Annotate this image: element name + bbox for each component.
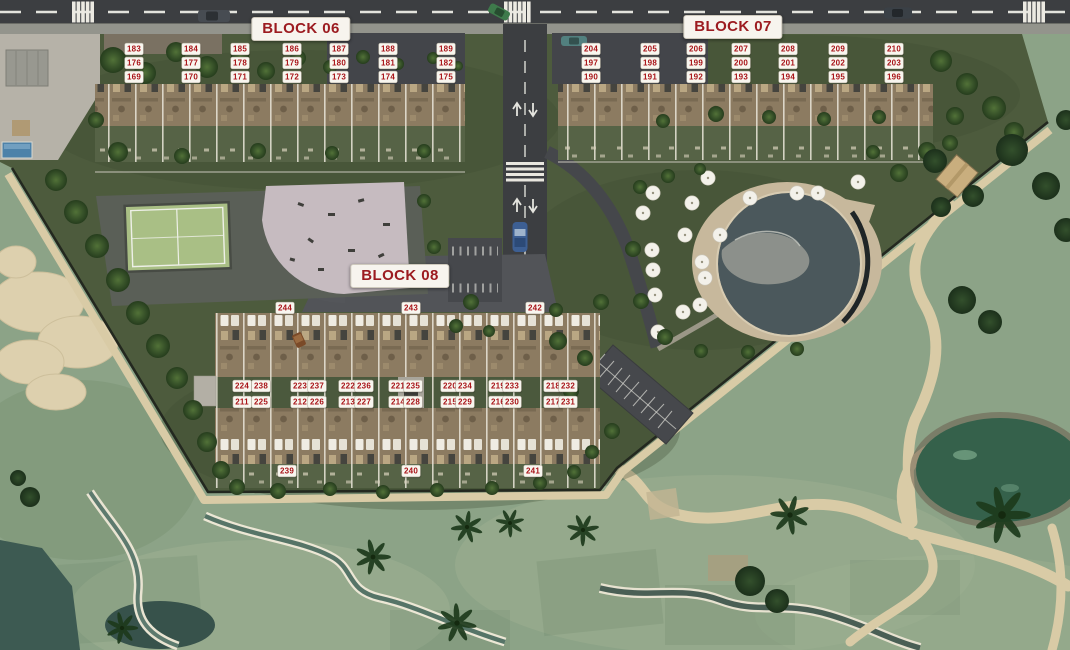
unit-label-204: 204 bbox=[582, 44, 600, 55]
tree-icon bbox=[427, 240, 441, 254]
unit-label-207: 207 bbox=[732, 44, 750, 55]
parking-lot-west bbox=[448, 238, 502, 302]
tree-icon bbox=[923, 149, 947, 173]
tree-icon bbox=[197, 432, 217, 452]
block-06-label: BLOCK 06 bbox=[251, 17, 350, 41]
tree-icon bbox=[485, 481, 499, 495]
unit-label-179: 179 bbox=[283, 58, 301, 69]
unit-label-212: 212 bbox=[291, 397, 309, 408]
unit-label-210: 210 bbox=[885, 44, 903, 55]
tree-icon bbox=[106, 268, 130, 292]
unit-label-198: 198 bbox=[641, 58, 659, 69]
tree-icon bbox=[449, 319, 463, 333]
tree-icon bbox=[982, 96, 1006, 120]
unit-label-225: 225 bbox=[252, 397, 270, 408]
unit-label-230: 230 bbox=[503, 397, 521, 408]
unit-label-189: 189 bbox=[437, 44, 455, 55]
unit-label-237: 237 bbox=[308, 381, 326, 392]
tree-icon bbox=[656, 114, 670, 128]
unit-label-239: 239 bbox=[278, 466, 296, 477]
unit-label-169: 169 bbox=[125, 72, 143, 83]
tree-icon bbox=[166, 367, 188, 389]
unit-label-174: 174 bbox=[379, 72, 397, 83]
unit-label-227: 227 bbox=[355, 397, 373, 408]
tree-icon bbox=[956, 73, 978, 95]
block-07-label: BLOCK 07 bbox=[683, 15, 782, 39]
tree-icon bbox=[549, 303, 563, 317]
unit-label-231: 231 bbox=[559, 397, 577, 408]
unit-label-238: 238 bbox=[252, 381, 270, 392]
unit-label-193: 193 bbox=[732, 72, 750, 83]
block-08-label: BLOCK 08 bbox=[350, 264, 449, 288]
tree-icon bbox=[257, 62, 275, 80]
tree-icon bbox=[64, 200, 88, 224]
unit-label-208: 208 bbox=[779, 44, 797, 55]
padel-court bbox=[125, 202, 231, 272]
tree-icon bbox=[417, 194, 431, 208]
unit-label-192: 192 bbox=[687, 72, 705, 83]
tree-icon bbox=[146, 334, 170, 358]
tree-icon bbox=[765, 589, 789, 613]
car bbox=[198, 10, 230, 22]
unit-label-240: 240 bbox=[402, 466, 420, 477]
unit-label-171: 171 bbox=[231, 72, 249, 83]
tree-icon bbox=[741, 345, 755, 359]
tree-icon bbox=[978, 310, 1002, 334]
tree-icon bbox=[325, 146, 339, 160]
unit-label-211: 211 bbox=[233, 397, 251, 408]
tree-icon bbox=[735, 566, 765, 596]
tree-icon bbox=[88, 112, 104, 128]
tree-icon bbox=[183, 400, 203, 420]
tree-icon bbox=[270, 483, 286, 499]
tree-icon bbox=[567, 465, 581, 479]
car bbox=[513, 222, 528, 252]
unit-label-229: 229 bbox=[456, 397, 474, 408]
unit-label-197: 197 bbox=[582, 58, 600, 69]
tree-icon bbox=[585, 445, 599, 459]
unit-label-234: 234 bbox=[456, 381, 474, 392]
unit-label-175: 175 bbox=[437, 72, 455, 83]
unit-label-178: 178 bbox=[231, 58, 249, 69]
tree-icon bbox=[657, 329, 673, 345]
tree-icon bbox=[323, 482, 337, 496]
unit-label-186: 186 bbox=[283, 44, 301, 55]
tree-icon bbox=[549, 332, 567, 350]
tree-icon bbox=[962, 185, 984, 207]
tree-icon bbox=[533, 476, 547, 490]
unit-label-236: 236 bbox=[355, 381, 373, 392]
tree-icon bbox=[593, 294, 609, 310]
tree-icon bbox=[417, 144, 431, 158]
unit-label-190: 190 bbox=[582, 72, 600, 83]
tree-icon bbox=[931, 197, 951, 217]
tree-icon bbox=[872, 110, 886, 124]
unit-label-205: 205 bbox=[641, 44, 659, 55]
tree-icon bbox=[229, 479, 245, 495]
tree-icon bbox=[577, 350, 593, 366]
unit-label-243: 243 bbox=[402, 303, 420, 314]
unit-label-235: 235 bbox=[404, 381, 422, 392]
tree-icon bbox=[633, 180, 647, 194]
unit-label-206: 206 bbox=[687, 44, 705, 55]
unit-label-183: 183 bbox=[125, 44, 143, 55]
unit-label-199: 199 bbox=[687, 58, 705, 69]
unit-label-223: 223 bbox=[291, 381, 309, 392]
tree-icon bbox=[708, 106, 724, 122]
unit-label-176: 176 bbox=[125, 58, 143, 69]
tree-icon bbox=[694, 163, 706, 175]
tree-icon bbox=[356, 50, 370, 64]
tree-icon bbox=[762, 110, 776, 124]
unit-label-194: 194 bbox=[779, 72, 797, 83]
tree-icon bbox=[996, 134, 1028, 166]
tree-icon bbox=[661, 169, 675, 183]
unit-label-232: 232 bbox=[559, 381, 577, 392]
tree-icon bbox=[790, 342, 804, 356]
tree-icon bbox=[100, 47, 126, 73]
tree-icon bbox=[604, 423, 620, 439]
unit-label-202: 202 bbox=[829, 58, 847, 69]
unit-label-185: 185 bbox=[231, 44, 249, 55]
unit-label-203: 203 bbox=[885, 58, 903, 69]
unit-label-242: 242 bbox=[526, 303, 544, 314]
tree-icon bbox=[1032, 172, 1060, 200]
tree-icon bbox=[376, 485, 390, 499]
tree-icon bbox=[108, 142, 128, 162]
car bbox=[884, 8, 912, 19]
unit-label-195: 195 bbox=[829, 72, 847, 83]
tree-icon bbox=[20, 487, 40, 507]
tree-icon bbox=[174, 148, 190, 164]
tree-icon bbox=[463, 294, 479, 310]
unit-label-170: 170 bbox=[182, 72, 200, 83]
unit-label-184: 184 bbox=[182, 44, 200, 55]
tree-icon bbox=[890, 164, 908, 182]
tree-icon bbox=[633, 293, 649, 309]
unit-label-233: 233 bbox=[503, 381, 521, 392]
tree-icon bbox=[930, 50, 952, 72]
unit-label-182: 182 bbox=[437, 58, 455, 69]
tree-icon bbox=[212, 461, 230, 479]
tree-icon bbox=[126, 301, 150, 325]
unit-label-173: 173 bbox=[330, 72, 348, 83]
tree-icon bbox=[625, 241, 641, 257]
tree-icon bbox=[10, 470, 26, 486]
unit-label-201: 201 bbox=[779, 58, 797, 69]
tree-icon bbox=[942, 135, 958, 151]
tree-icon bbox=[250, 143, 266, 159]
unit-label-244: 244 bbox=[276, 303, 294, 314]
tree-icon bbox=[817, 112, 831, 126]
pool-area bbox=[692, 182, 882, 342]
unit-label-180: 180 bbox=[330, 58, 348, 69]
unit-label-241: 241 bbox=[524, 466, 542, 477]
tree-icon bbox=[946, 107, 964, 125]
unit-label-228: 228 bbox=[404, 397, 422, 408]
tree-icon bbox=[694, 344, 708, 358]
tree-icon bbox=[430, 483, 444, 497]
tree-icon bbox=[866, 145, 880, 159]
unit-label-187: 187 bbox=[330, 44, 348, 55]
tree-icon bbox=[85, 234, 109, 258]
tree-icon bbox=[948, 286, 976, 314]
unit-label-226: 226 bbox=[308, 397, 326, 408]
block-06-buildings bbox=[95, 84, 465, 172]
unit-label-172: 172 bbox=[283, 72, 301, 83]
unit-label-181: 181 bbox=[379, 58, 397, 69]
tree-icon bbox=[483, 325, 495, 337]
unit-label-191: 191 bbox=[641, 72, 659, 83]
unit-label-200: 200 bbox=[732, 58, 750, 69]
siteplan-rendering bbox=[0, 0, 1070, 650]
unit-label-177: 177 bbox=[182, 58, 200, 69]
unit-label-196: 196 bbox=[885, 72, 903, 83]
tree-icon bbox=[45, 169, 67, 191]
masterplan-canvas: BLOCK 06 BLOCK 07 BLOCK 08 1831841851861… bbox=[0, 0, 1070, 650]
unit-label-188: 188 bbox=[379, 44, 397, 55]
unit-label-209: 209 bbox=[829, 44, 847, 55]
unit-label-224: 224 bbox=[233, 381, 251, 392]
